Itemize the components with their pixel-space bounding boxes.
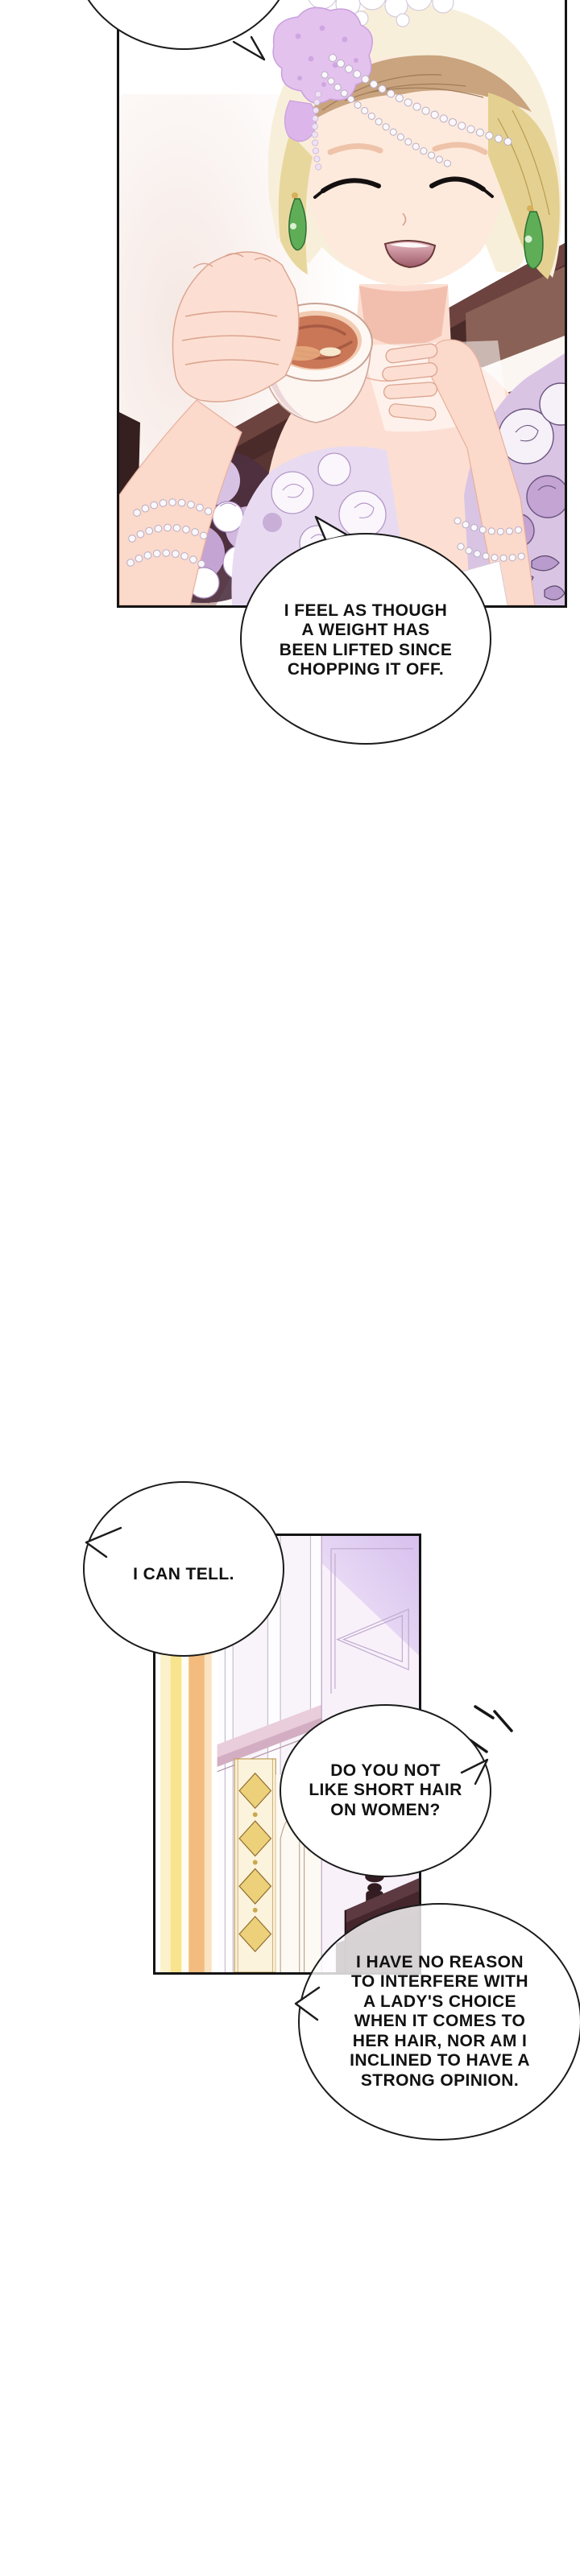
speech-text-feel: I FEEL AS THOUGH A WEIGHT HAS BEEN LIFTE… bbox=[280, 601, 452, 680]
speech-tail-partial bbox=[227, 32, 275, 66]
speech-bubble-feel: I FEEL AS THOUGH A WEIGHT HAS BEEN LIFTE… bbox=[240, 533, 491, 745]
speech-bubble-tell: I CAN TELL. bbox=[83, 1481, 284, 1657]
speech-tail-tell bbox=[77, 1521, 133, 1566]
speech-tail-no-reason bbox=[288, 1979, 337, 2031]
speech-tail-short-hair bbox=[451, 1751, 499, 1791]
speech-text-no-reason: I HAVE NO REASON TO INTERFERE WITH A LAD… bbox=[350, 1953, 530, 2091]
speech-text-tell: I CAN TELL. bbox=[133, 1565, 234, 1585]
speech-text-short-hair: DO YOU NOT LIKE SHORT HAIR ON WOMEN? bbox=[309, 1761, 462, 1821]
neck-shadow bbox=[359, 286, 448, 346]
speech-bubble-no-reason: I HAVE NO REASON TO INTERFERE WITH A LAD… bbox=[298, 1903, 580, 2140]
comic-page: I FEEL AS THOUGH A WEIGHT HAS BEEN LIFTE… bbox=[0, 0, 580, 2576]
gold-pilaster bbox=[234, 1759, 275, 1972]
speech-tail-feel bbox=[306, 507, 354, 547]
